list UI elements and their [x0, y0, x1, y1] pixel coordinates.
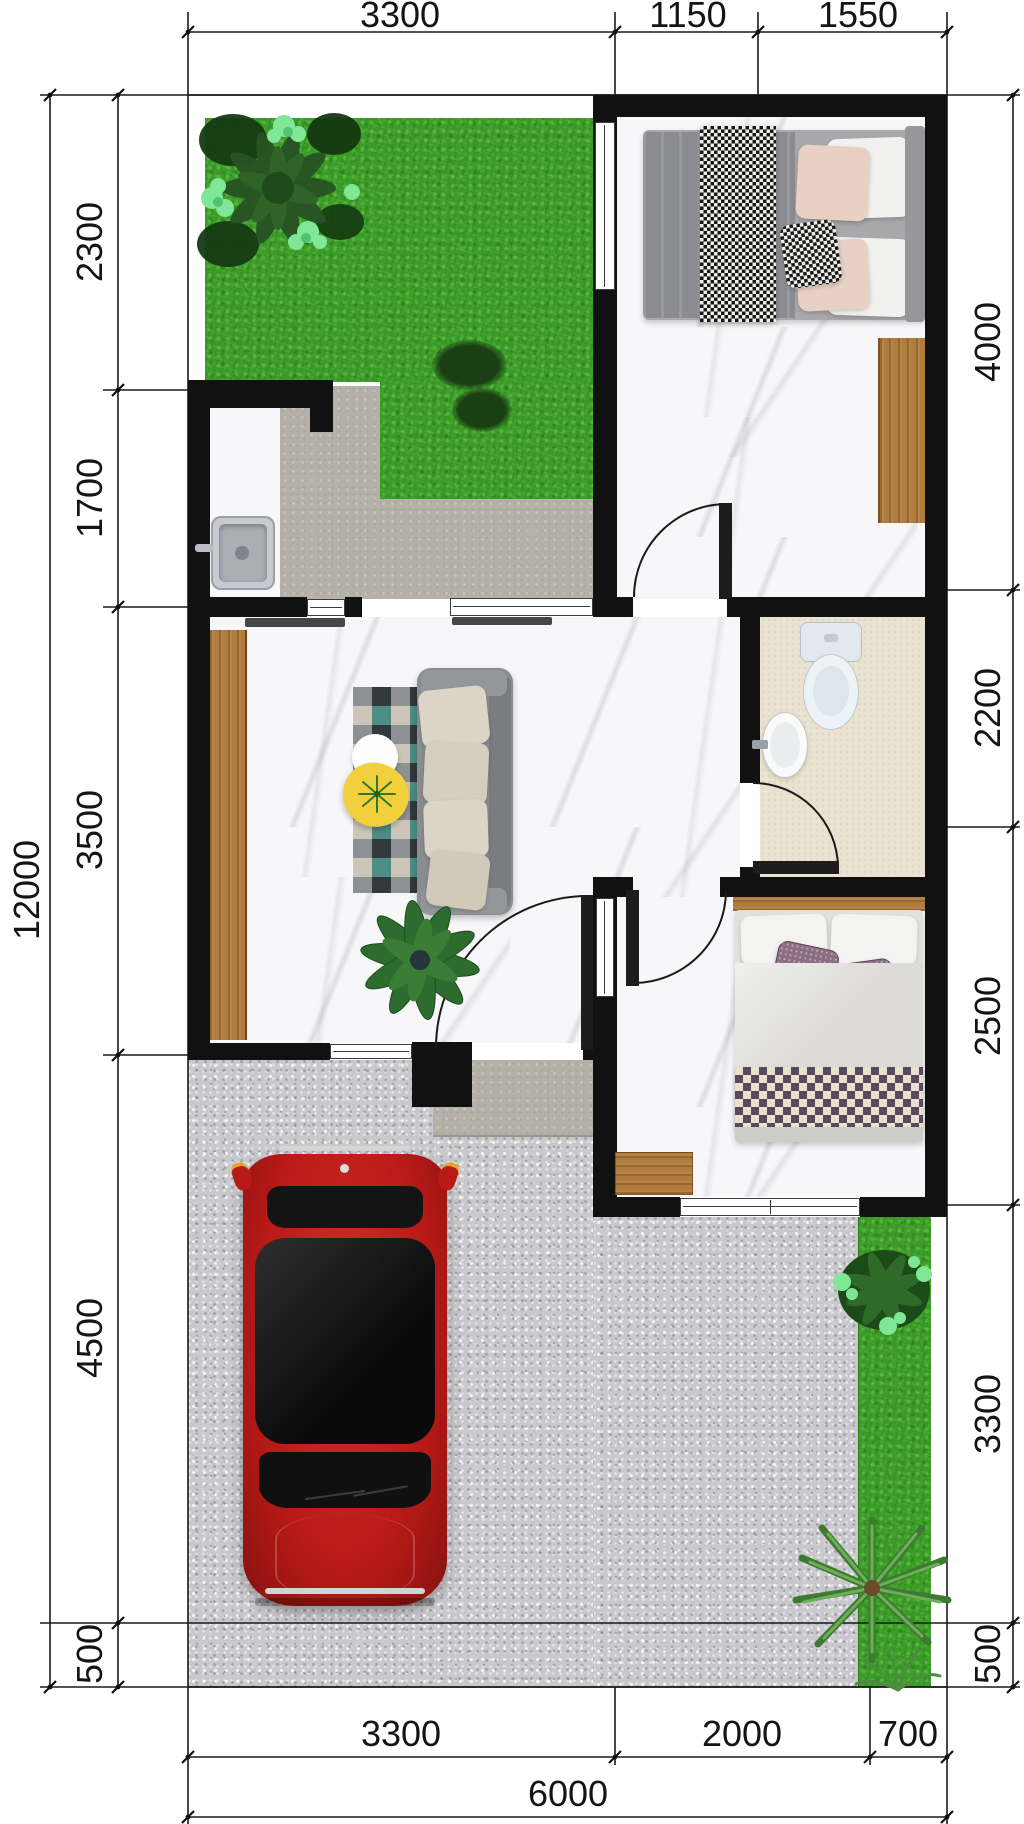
basin-tap	[752, 740, 768, 749]
entry-door	[581, 895, 593, 1050]
bedroom1-door	[719, 503, 732, 599]
toilet-flush-button	[824, 634, 838, 642]
dim-left-1: 2300	[72, 202, 108, 282]
curtain-rail-left	[245, 618, 345, 627]
dim-left-overall: 12000	[9, 840, 45, 940]
accent-cushion	[779, 218, 843, 289]
wash-basin	[758, 712, 808, 780]
car-front-trim	[265, 1588, 425, 1594]
dim-right-1: 4000	[970, 302, 1006, 382]
living-south-window	[330, 1044, 412, 1059]
dim-bottom-1: 3300	[361, 1716, 441, 1752]
console-cabinet	[210, 630, 247, 1040]
sink-tap	[195, 544, 213, 552]
bedroom1-west-window	[595, 122, 615, 290]
bedroom2-south-wall-b	[860, 1197, 947, 1217]
bed-headboard	[733, 897, 925, 911]
living-north-wall-a	[188, 597, 307, 617]
checkered-blanket	[735, 1067, 923, 1129]
bedroom2-door	[626, 890, 639, 986]
sink-drain	[235, 546, 249, 560]
toilet-seat	[813, 666, 849, 716]
bathroom-west-wall	[740, 617, 760, 783]
dim-top-3: 1550	[818, 0, 898, 33]
service-window	[307, 599, 345, 616]
double-bed	[643, 126, 925, 322]
service-wall-stub	[310, 380, 333, 432]
living-north-window	[450, 598, 593, 616]
bedroom1-south-wall	[727, 597, 947, 617]
bed-foot-rail	[735, 1127, 923, 1142]
single-bed	[733, 897, 925, 1145]
dim-top-2: 1150	[649, 0, 726, 33]
flowering-shrub	[188, 102, 368, 274]
fern	[850, 1640, 946, 1692]
bathroom-door	[753, 861, 839, 874]
living-south-wall	[188, 1043, 330, 1060]
sofa-cushion	[423, 799, 489, 859]
living-north-wall-b	[345, 597, 362, 617]
dim-left-3: 3500	[72, 790, 108, 870]
east-wall	[925, 95, 947, 1217]
kitchen-sink	[211, 516, 277, 592]
moss-tuft	[452, 388, 512, 432]
dim-right-5: 500	[970, 1624, 1006, 1684]
bedroom1-north-wall	[593, 95, 947, 117]
car-front-bumper	[255, 1598, 435, 1606]
sofa-cushion	[417, 685, 491, 750]
wardrobe	[878, 338, 925, 523]
bed-sheet	[735, 963, 923, 1075]
dim-right-4: 3300	[970, 1374, 1006, 1454]
dim-left-2: 1700	[72, 458, 108, 538]
curtain-rail-right	[452, 617, 552, 625]
sofa-backrest	[489, 674, 511, 909]
car-windshield	[259, 1452, 431, 1508]
car-rear-window	[267, 1186, 423, 1228]
headboard	[905, 126, 925, 322]
entry-column	[412, 1042, 472, 1107]
potted-plant	[346, 886, 494, 1034]
car	[235, 1146, 455, 1612]
dim-right-3: 2500	[970, 976, 1006, 1056]
dim-bottom-2: 2000	[702, 1716, 782, 1752]
pillow-pink	[795, 144, 871, 222]
car-roof-rack	[280, 1146, 410, 1151]
west-wall	[188, 380, 210, 1060]
car-rear-logo	[340, 1164, 349, 1173]
bedroom2-west-window	[596, 898, 614, 997]
car-roof-glass	[255, 1238, 435, 1444]
floor-plan: 3300 1150 1550 12000 2300 1700 3500 4500…	[0, 0, 1024, 1824]
dim-bottom-overall: 6000	[528, 1776, 608, 1812]
sofa-cushion	[422, 740, 489, 805]
houndstooth-throw	[700, 126, 776, 322]
dim-top-1: 3300	[360, 0, 440, 33]
sofa	[415, 667, 515, 917]
car-hood-crease	[275, 1514, 415, 1598]
bedroom2-south-wall-a	[593, 1197, 680, 1217]
dim-right-2: 2200	[970, 668, 1006, 748]
wood-mat	[615, 1152, 693, 1195]
bedroom2-south-window	[680, 1198, 860, 1216]
moss-tuft	[432, 340, 507, 390]
bathroom-south-wall	[720, 877, 947, 897]
dim-left-4: 4500	[72, 1298, 108, 1378]
dim-left-5: 500	[72, 1624, 108, 1684]
bedroom1-south-wall-stub	[593, 597, 633, 617]
table-plant-sprig	[355, 772, 399, 816]
basin-inner	[770, 722, 800, 768]
dim-bottom-3: 700	[878, 1716, 938, 1752]
shrub	[824, 1234, 946, 1348]
